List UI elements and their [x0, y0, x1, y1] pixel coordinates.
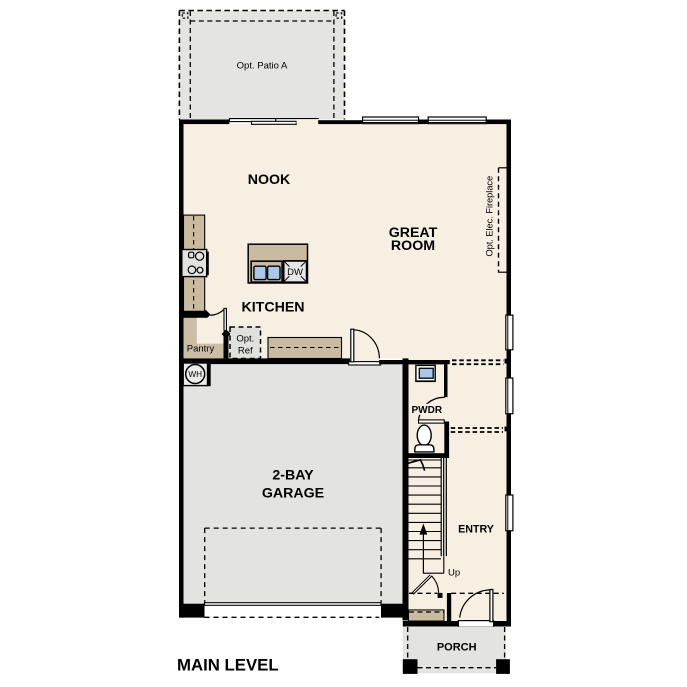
svg-text:PWDR: PWDR — [412, 405, 443, 416]
svg-text:2-BAY: 2-BAY — [272, 468, 314, 484]
svg-text:ROOM: ROOM — [391, 238, 435, 254]
svg-text:Ref: Ref — [238, 346, 253, 357]
svg-text:KITCHEN: KITCHEN — [241, 299, 304, 315]
svg-text:MAIN LEVEL: MAIN LEVEL — [177, 655, 279, 674]
svg-text:GARAGE: GARAGE — [262, 486, 324, 502]
svg-text:DW: DW — [287, 267, 303, 278]
svg-text:Opt. Elec. Fireplace: Opt. Elec. Fireplace — [485, 176, 495, 257]
svg-text:Opt.: Opt. — [236, 334, 254, 345]
svg-text:NOOK: NOOK — [248, 172, 291, 188]
svg-text:Up: Up — [448, 567, 460, 578]
svg-text:ENTRY: ENTRY — [458, 523, 494, 535]
svg-text:WH: WH — [188, 370, 202, 379]
svg-text:Opt. Patio A: Opt. Patio A — [237, 61, 288, 72]
svg-text:PORCH: PORCH — [437, 642, 477, 654]
svg-text:Pantry: Pantry — [187, 344, 215, 355]
